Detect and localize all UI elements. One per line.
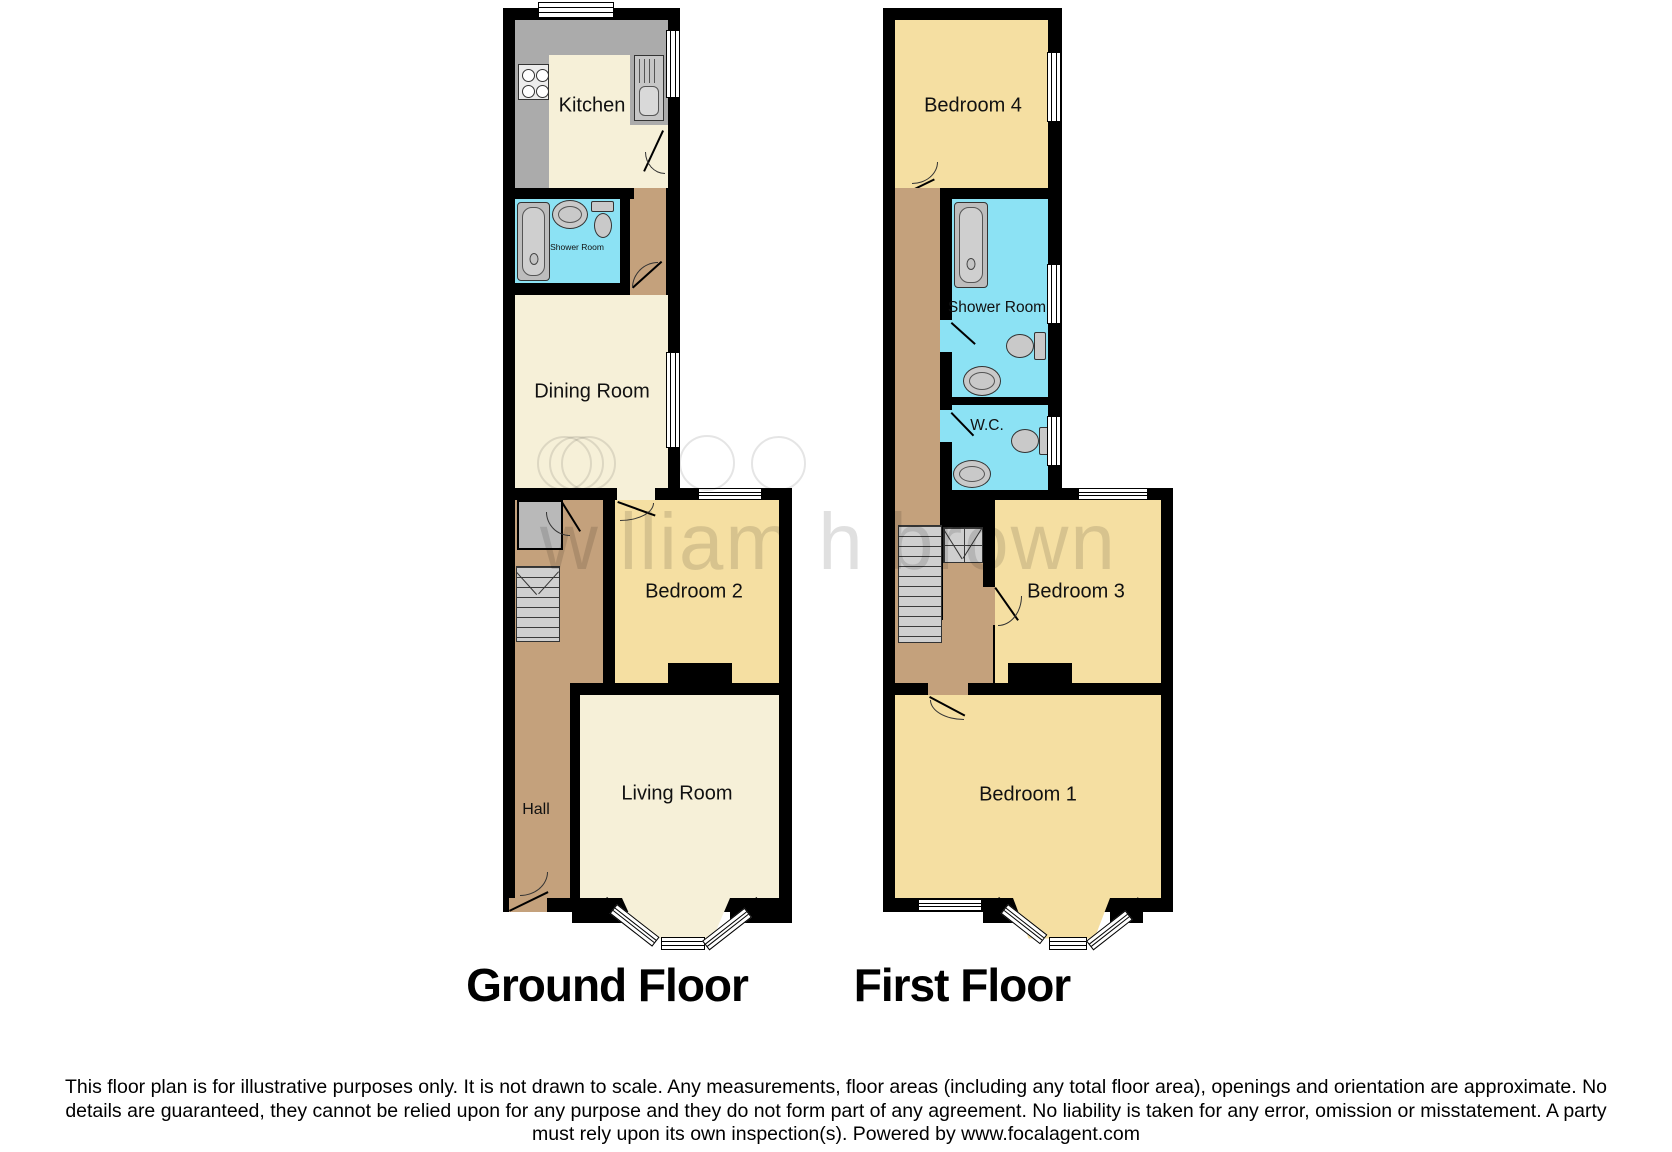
room-living-label: Living Room xyxy=(621,783,732,806)
bedroom2-window xyxy=(698,488,762,500)
dining-window xyxy=(666,352,680,448)
bedroom2-door-opening xyxy=(617,488,655,500)
room-hall-label: Hall xyxy=(522,801,550,819)
bath-icon xyxy=(517,202,550,281)
sink-icon xyxy=(634,55,664,121)
shower-window xyxy=(1047,264,1061,324)
kitchen-counter xyxy=(515,20,549,188)
first-floor-title: First Floor xyxy=(854,958,1070,1012)
bedroom1-window xyxy=(918,899,982,911)
kitchen-door-opening xyxy=(634,188,666,199)
room-shower-ff-label: Shower Room xyxy=(948,299,1046,317)
watermark-logo-circle xyxy=(679,435,735,491)
watermark-logo-circle xyxy=(751,436,806,491)
kitchen-window xyxy=(538,2,614,18)
room-bedroom3-label: Bedroom 3 xyxy=(1027,581,1125,604)
toilet-icon xyxy=(1034,332,1046,360)
bedroom4-window xyxy=(1047,52,1061,122)
disclaimer: This floor plan is for illustrative purp… xyxy=(0,1076,1672,1147)
toilet-icon xyxy=(1006,334,1034,358)
room-shower-label: Shower Room xyxy=(550,242,604,252)
ground-floor-title: Ground Floor xyxy=(466,958,748,1012)
kitchen-window xyxy=(666,30,680,98)
disclaimer-line-2: details are guaranteed, they cannot be r… xyxy=(0,1100,1672,1124)
bedroom1-door-opening xyxy=(928,683,968,695)
room-kitchen-label: Kitchen xyxy=(559,95,626,118)
stairs xyxy=(898,525,942,643)
toilet-icon xyxy=(591,201,614,212)
hob-icon xyxy=(518,64,549,100)
disclaimer-line-1: This floor plan is for illustrative purp… xyxy=(0,1076,1672,1100)
bedroom3-door-opening xyxy=(983,587,995,625)
bath-icon xyxy=(954,202,988,288)
room-bedroom1-label: Bedroom 1 xyxy=(979,784,1077,807)
wc-window xyxy=(1047,416,1061,466)
bedroom3-window xyxy=(1078,488,1148,500)
basin-icon xyxy=(963,366,1001,396)
hall-link xyxy=(515,683,570,695)
bay-window xyxy=(1049,937,1087,950)
disclaimer-line-3: must rely upon its own inspection(s). Po… xyxy=(0,1123,1672,1147)
room-bedroom4-label: Bedroom 4 xyxy=(924,95,1022,118)
bay-window xyxy=(661,937,705,950)
wc-door-opening xyxy=(940,410,952,442)
basin-icon xyxy=(552,200,588,229)
room-wc-label: W.C. xyxy=(970,417,1004,435)
shower-door-opening xyxy=(940,320,952,352)
room-dining-label: Dining Room xyxy=(534,381,650,404)
hall-lower xyxy=(515,695,570,898)
landing xyxy=(943,563,983,620)
toilet-icon xyxy=(594,213,612,238)
toilet-icon xyxy=(1011,429,1039,453)
room-bedroom2-label: Bedroom 2 xyxy=(645,581,743,604)
basin-icon xyxy=(953,460,991,488)
